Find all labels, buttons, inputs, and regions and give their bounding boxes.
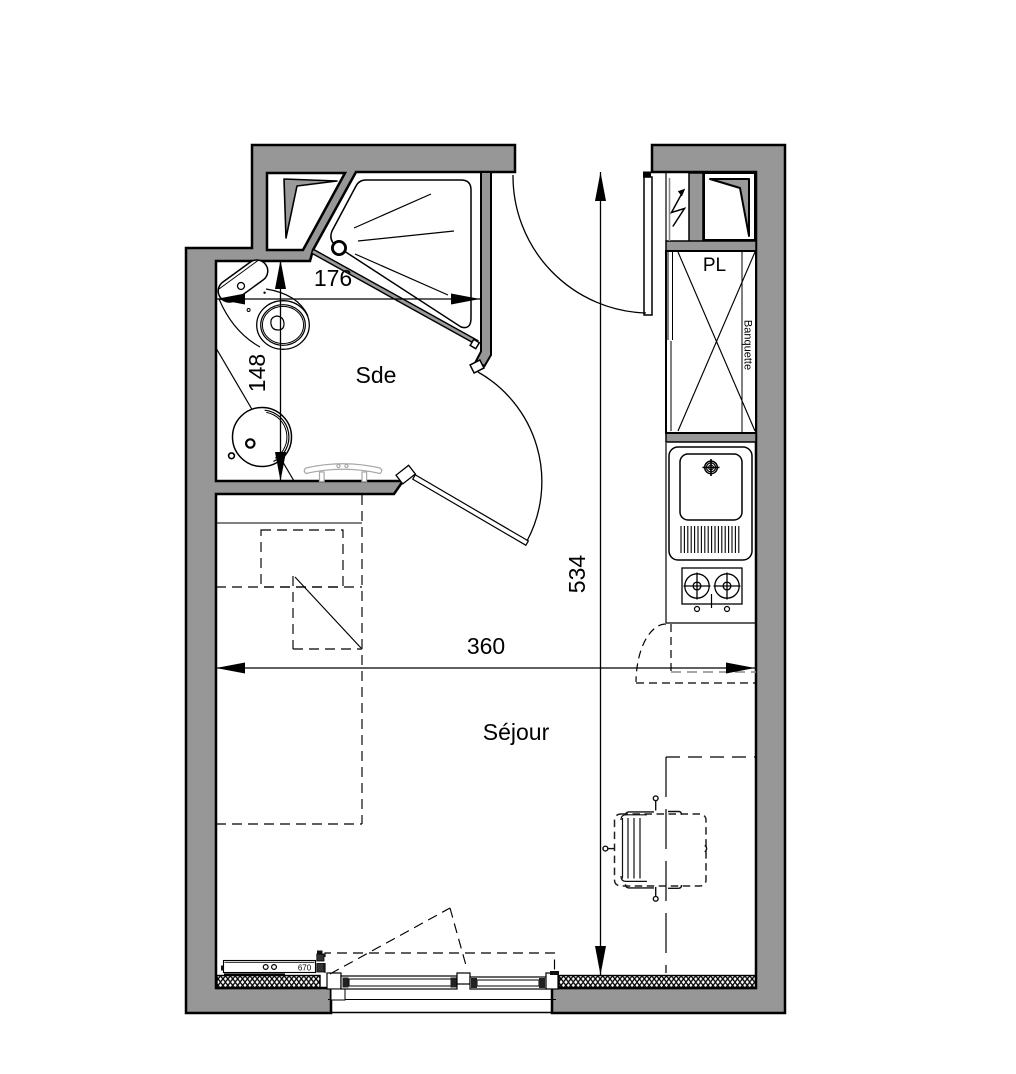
svg-text:Banquette: Banquette <box>742 320 754 370</box>
svg-text:670: 670 <box>298 964 312 973</box>
svg-text:360: 360 <box>467 633 505 659</box>
svg-text:Séjour: Séjour <box>483 719 550 745</box>
svg-text:176: 176 <box>314 265 352 291</box>
svg-text:Sde: Sde <box>356 362 397 388</box>
svg-text:PL: PL <box>703 255 726 276</box>
svg-text:534: 534 <box>564 555 590 594</box>
svg-text:148: 148 <box>244 354 270 392</box>
